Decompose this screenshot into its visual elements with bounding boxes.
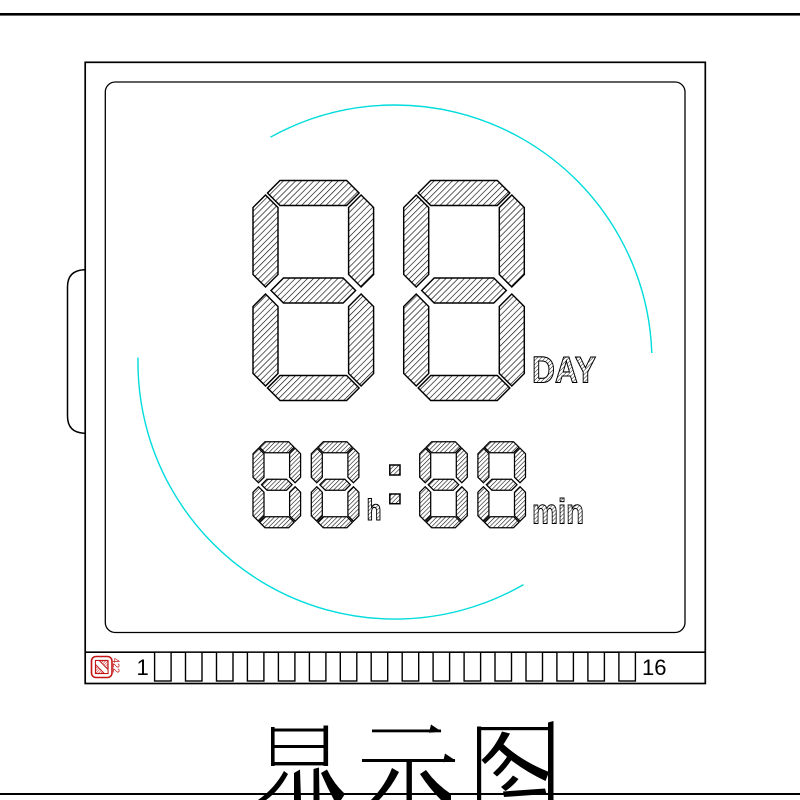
svg-text:min: min xyxy=(532,493,584,532)
svg-text:422: 422 xyxy=(111,658,121,673)
svg-text:h: h xyxy=(367,494,382,527)
svg-text:DAY: DAY xyxy=(532,350,596,391)
svg-text:16: 16 xyxy=(642,655,666,680)
svg-text:1: 1 xyxy=(137,655,149,680)
